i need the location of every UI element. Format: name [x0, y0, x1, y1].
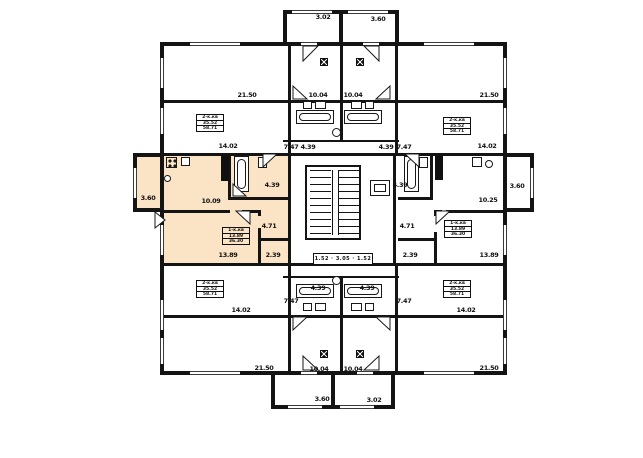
wall-segment: [393, 153, 396, 266]
area-label: 10.04: [343, 365, 362, 373]
vent-circle-icon: [332, 128, 341, 137]
wall-segment: [162, 315, 505, 318]
wall-segment: [340, 276, 343, 375]
unit-info-line: 58.71: [197, 126, 223, 131]
unit-info-plate: 2-к.кв35.5258.71: [443, 280, 471, 298]
wall-segment: [133, 208, 162, 212]
window-icon: [160, 300, 164, 330]
wall-segment: [391, 373, 395, 409]
vent-shaft-icon: [356, 350, 364, 358]
area-label: 21.50: [254, 364, 273, 372]
sink-icon: [351, 303, 362, 311]
sink-icon: [181, 157, 190, 166]
wall-segment: [395, 10, 399, 46]
area-label: 14.02: [477, 142, 496, 150]
door-swing-icon: [303, 46, 318, 61]
chute-box: [370, 180, 390, 196]
bathtub-icon: [344, 110, 382, 124]
wall-segment: [339, 10, 343, 44]
window-icon: [424, 42, 474, 46]
wall-segment: [395, 42, 398, 153]
area-label: 4.39: [301, 143, 316, 151]
wall-segment: [430, 153, 433, 200]
window-icon: [363, 42, 379, 46]
stair-flight-left: [310, 170, 331, 235]
window-icon: [424, 371, 474, 375]
unit-info-line: 58.71: [444, 129, 470, 134]
door-swing-icon: [364, 46, 379, 61]
wall-segment: [162, 153, 505, 156]
wall-segment: [133, 153, 162, 157]
bathtub-inner: [237, 159, 246, 189]
vent-circle-icon: [485, 160, 493, 168]
area-label: 4.71: [262, 222, 277, 230]
bathtub-icon: [234, 156, 249, 192]
area-label: 3.60: [371, 15, 386, 23]
floor-plan: 1.52 · 3.05 · 1.52 3.023.6021.5010.0410.…: [0, 0, 643, 458]
window-icon: [190, 42, 240, 46]
unit-info-line: 36.30: [445, 232, 471, 237]
window-icon: [190, 371, 240, 375]
window-icon: [160, 108, 164, 134]
area-label: 2.39: [266, 251, 281, 259]
stove-icon: [166, 157, 177, 168]
area-label: 14.02: [231, 306, 250, 314]
area-label: 14.02: [218, 142, 237, 150]
sink-icon: [351, 101, 362, 109]
window-icon: [530, 168, 534, 198]
wall-segment: [331, 375, 335, 407]
unit-info-plate[interactable]: 1-к.кв13.8936.30: [222, 227, 250, 245]
area-label: 10.04: [343, 91, 362, 99]
unit-info-plate: 2-к.кв35.5258.71: [196, 114, 224, 132]
unit-info-plate: 1-к.кв13.8936.30: [444, 220, 472, 238]
area-label: 10.25: [478, 196, 497, 204]
unit-info-line: 58.71: [197, 292, 223, 297]
chute-box-inner: [374, 184, 386, 192]
area-label: 13.89: [218, 251, 237, 259]
staircase: [305, 165, 361, 240]
area-label: 7.47: [284, 143, 299, 151]
area-label: 10.04: [308, 91, 327, 99]
bathtub-inner: [347, 113, 379, 121]
vent-shaft-icon: [320, 350, 328, 358]
door-swing-icon: [376, 317, 390, 330]
area-label: 4.71: [400, 222, 415, 230]
wall-segment: [258, 238, 290, 241]
vent-shaft-icon: [320, 58, 328, 66]
unit-info-line: 36.30: [223, 239, 249, 244]
area-label: 3.02: [367, 396, 382, 404]
area-label: 21.50: [479, 364, 498, 372]
window-icon: [160, 58, 164, 88]
door-swing-icon: [364, 356, 379, 370]
area-label: 10.04: [309, 365, 328, 373]
unit-info-plate: 2-к.кв35.5258.71: [443, 117, 471, 135]
window-icon: [133, 168, 137, 198]
area-label: 7.47: [397, 297, 412, 305]
wall-segment: [283, 10, 287, 46]
area-label: 21.50: [479, 91, 498, 99]
area-label: 7.47: [397, 143, 412, 151]
washer-icon: [365, 101, 374, 109]
wall-segment: [288, 263, 291, 375]
unit-info-line: 58.71: [444, 292, 470, 297]
vent-circle-icon: [164, 175, 171, 182]
window-icon: [301, 42, 317, 46]
bathtub-icon: [296, 110, 334, 124]
stair-flight-right: [338, 170, 359, 235]
sink-icon: [315, 101, 326, 109]
toilet-icon: [419, 157, 428, 168]
duct-shaft: [435, 156, 443, 180]
wall-segment: [398, 197, 433, 200]
window-icon: [503, 108, 507, 134]
sink-icon: [472, 157, 482, 167]
area-label: 2.39: [403, 251, 418, 259]
window-icon: [503, 300, 507, 330]
bathtub-inner: [407, 159, 416, 189]
window-icon: [503, 225, 507, 255]
wall-segment: [162, 210, 230, 213]
wall-segment: [228, 197, 290, 200]
wall-segment: [162, 100, 505, 103]
window-icon: [348, 10, 388, 14]
door-swing-icon: [293, 86, 307, 99]
door-swing-icon: [293, 317, 307, 330]
area-label: 3.02: [316, 13, 331, 21]
wall-segment: [503, 153, 534, 157]
window-icon: [160, 225, 164, 255]
wall-segment: [258, 228, 261, 266]
window-icon: [160, 338, 164, 364]
duct-shaft: [221, 155, 229, 181]
wall-segment: [271, 373, 275, 409]
area-label: 4.39: [311, 284, 326, 292]
door-swing-icon: [376, 86, 390, 99]
area-label: 10.09: [201, 197, 220, 205]
area-label: 13.89: [479, 251, 498, 259]
window-icon: [340, 405, 374, 409]
sink-icon: [315, 303, 326, 311]
wall-segment: [398, 238, 437, 241]
area-label: 21.50: [237, 91, 256, 99]
wall-segment: [258, 210, 261, 216]
wall-segment: [288, 42, 291, 153]
area-label: 3.60: [141, 194, 156, 202]
wall-segment: [395, 263, 398, 375]
vent-shaft-icon: [356, 58, 364, 66]
area-label: 4.39: [379, 143, 394, 151]
wall-segment: [503, 208, 534, 212]
stair-entrance-plate: 1.52 · 3.05 · 1.52: [313, 253, 373, 265]
area-label: 3.60: [510, 182, 525, 190]
window-icon: [503, 58, 507, 88]
wall-segment: [446, 210, 503, 213]
area-label: 7.47: [284, 297, 299, 305]
area-label: 4.39: [265, 181, 280, 189]
area-label: 4.39: [393, 181, 408, 189]
unit-info-plate: 2-к.кв35.5258.71: [196, 280, 224, 298]
toilet-icon: [258, 157, 267, 168]
bathtub-inner: [299, 113, 331, 121]
window-icon: [503, 338, 507, 364]
window-icon: [288, 405, 322, 409]
area-label: 14.02: [456, 306, 475, 314]
washer-icon: [365, 303, 374, 311]
area-label: 3.60: [315, 395, 330, 403]
wall-segment: [288, 153, 291, 266]
wall-segment: [434, 210, 437, 216]
area-label: 4.39: [360, 284, 375, 292]
washer-icon: [303, 303, 312, 311]
washer-icon: [303, 101, 312, 109]
